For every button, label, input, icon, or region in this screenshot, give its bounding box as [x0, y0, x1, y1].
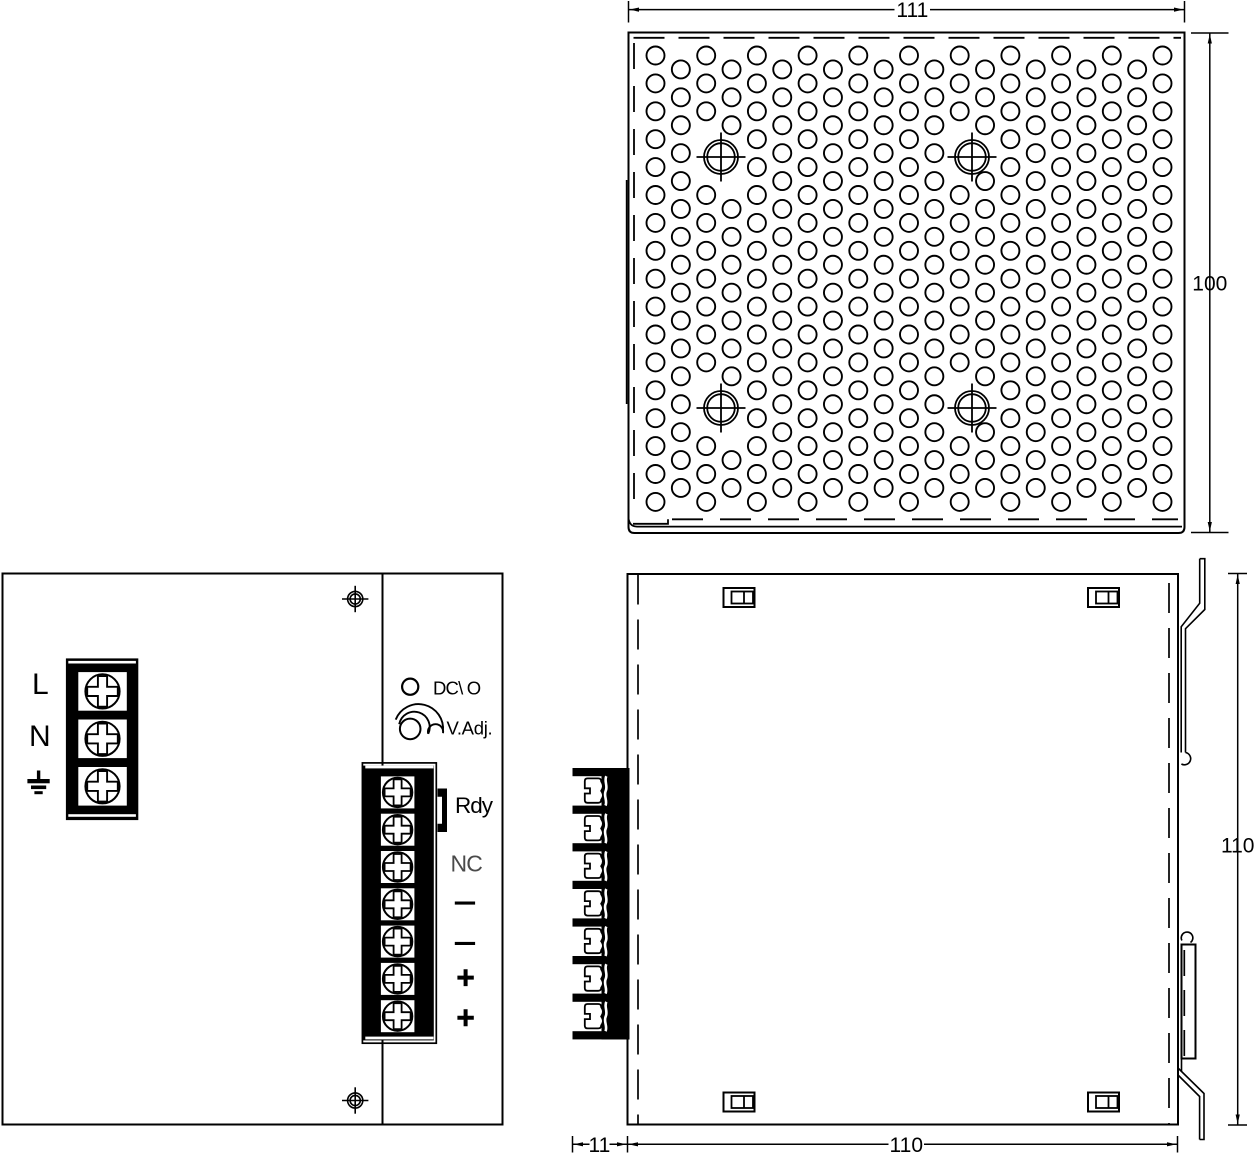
svg-text:110: 110 — [1221, 835, 1254, 858]
svg-text:V.Adj.: V.Adj. — [447, 717, 493, 738]
svg-text:NC: NC — [451, 851, 483, 877]
svg-text:Rdy: Rdy — [455, 793, 494, 818]
svg-text:N: N — [29, 720, 51, 753]
svg-text:11: 11 — [588, 1134, 610, 1155]
svg-text:DC\ O: DC\ O — [433, 677, 481, 698]
svg-text:110: 110 — [890, 1134, 923, 1155]
svg-text:L: L — [32, 668, 49, 701]
svg-text:111: 111 — [896, 0, 928, 22]
svg-text:100: 100 — [1192, 273, 1227, 296]
